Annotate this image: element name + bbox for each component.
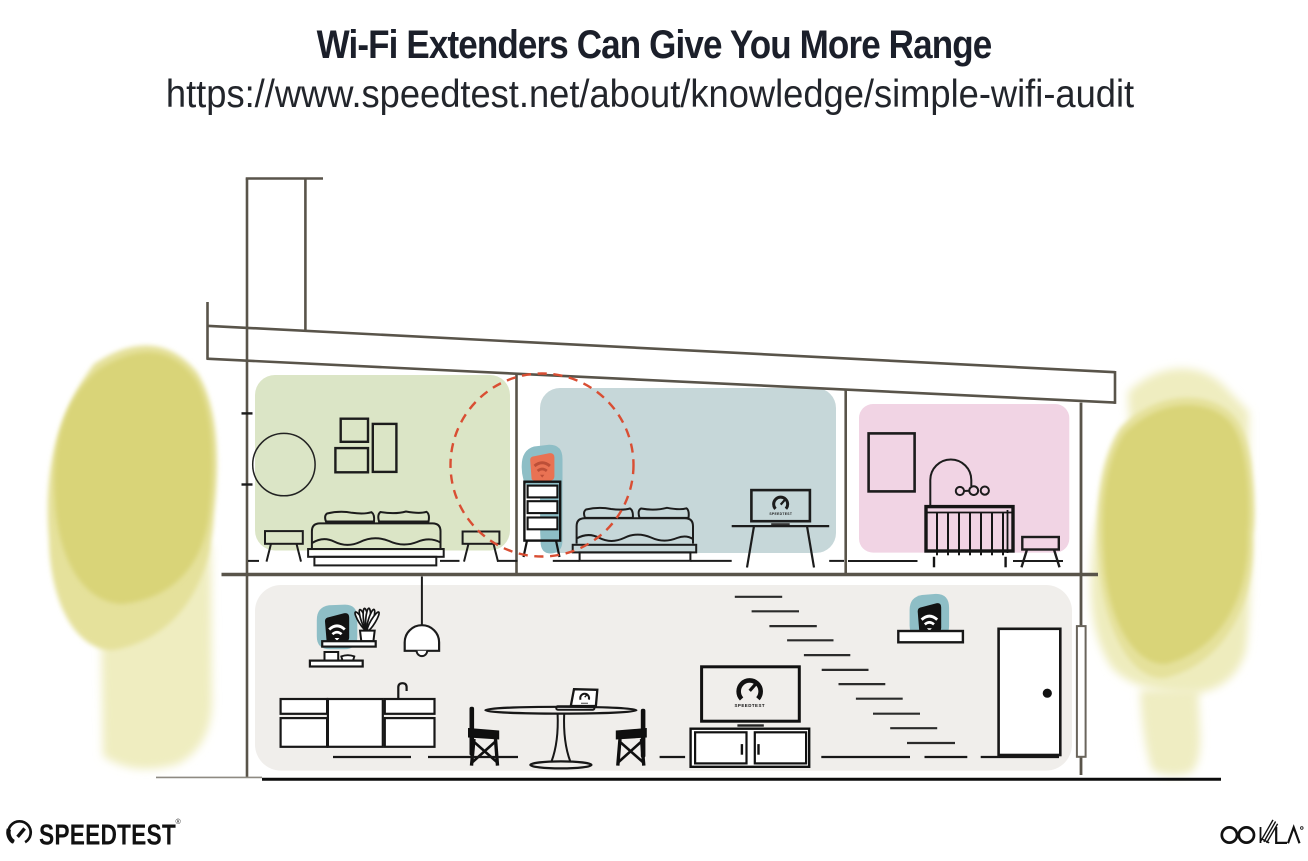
svg-text:SPEEDTEST: SPEEDTEST: [769, 512, 792, 516]
svg-text:https://www.speedtest.net/abou: https://www.speedtest.net/about/knowledg…: [166, 72, 1135, 115]
svg-text:®: ®: [176, 818, 182, 826]
svg-text:SPEEDTEST: SPEEDTEST: [734, 703, 765, 708]
svg-text:Wi-Fi Extenders Can Give You M: Wi-Fi Extenders Can Give You More Range: [317, 22, 992, 67]
svg-text:SPEEDTEST: SPEEDTEST: [39, 820, 176, 851]
